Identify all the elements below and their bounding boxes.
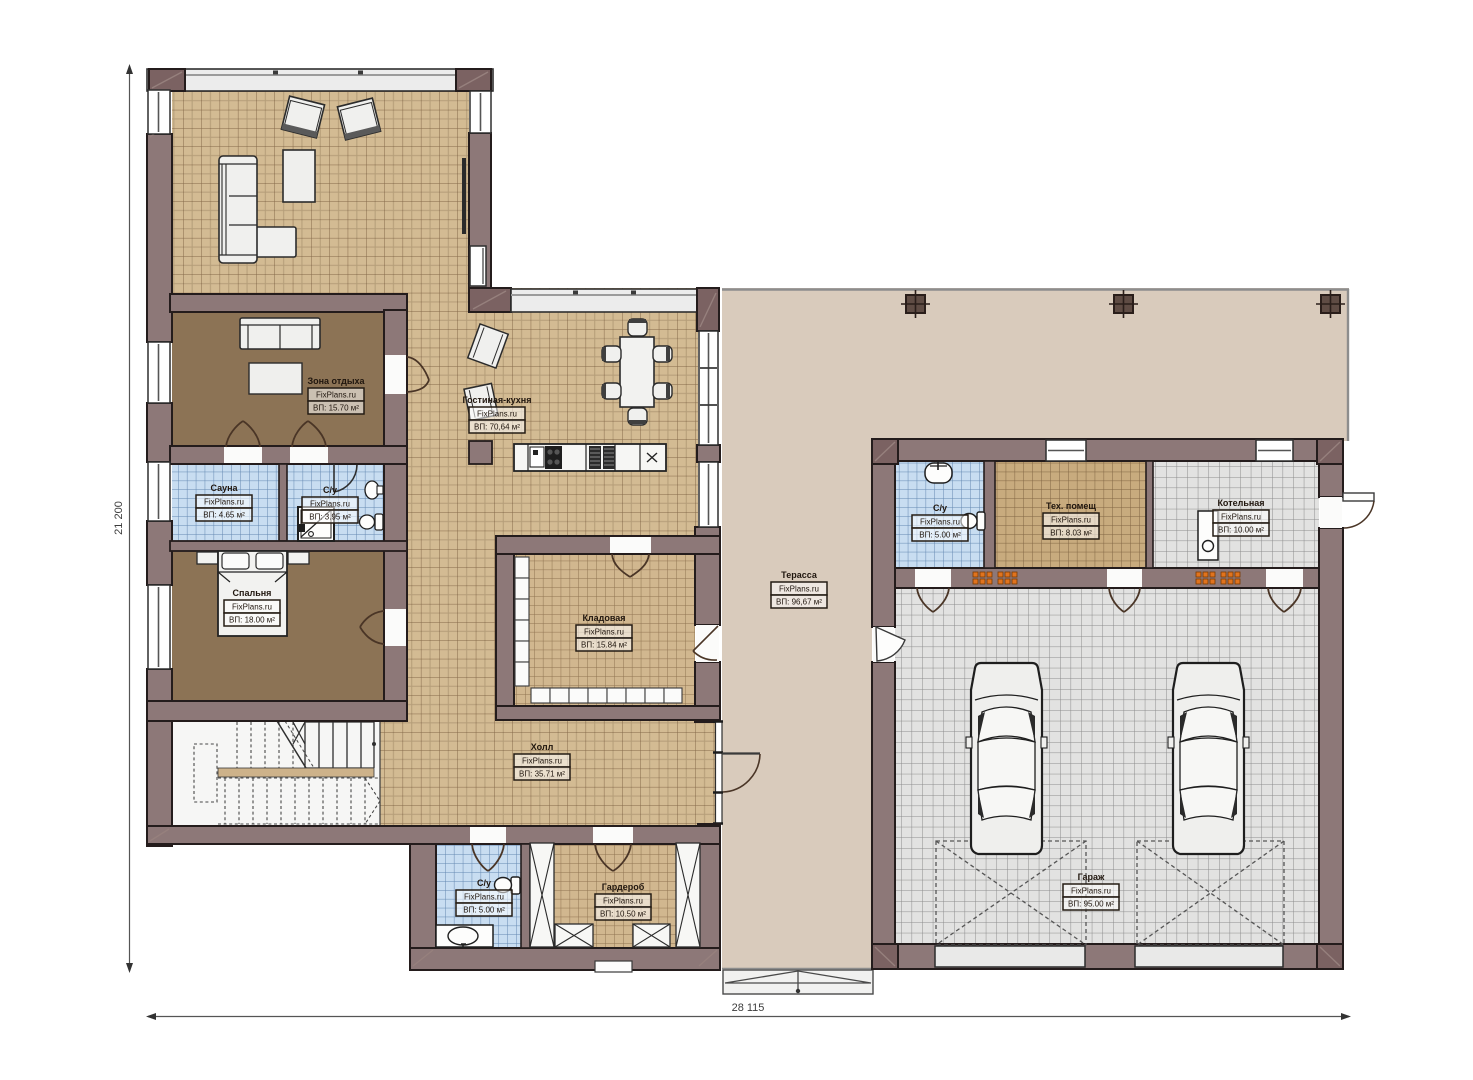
svg-text:Котельная: Котельная <box>1217 498 1264 508</box>
svg-text:Тех. помещ: Тех. помещ <box>1046 501 1096 511</box>
svg-text:FixPlans.ru: FixPlans.ru <box>1221 513 1261 522</box>
svg-text:Холл: Холл <box>531 742 554 752</box>
svg-text:FixPlans.ru: FixPlans.ru <box>1051 516 1091 525</box>
svg-text:FixPlans.ru: FixPlans.ru <box>204 498 244 507</box>
svg-text:FixPlans.ru: FixPlans.ru <box>310 500 350 509</box>
svg-text:21 200: 21 200 <box>113 501 125 535</box>
svg-text:FixPlans.ru: FixPlans.ru <box>477 410 517 419</box>
svg-text:ВП: 8.03 м²: ВП: 8.03 м² <box>1050 529 1092 538</box>
svg-text:Кладовая: Кладовая <box>582 613 625 623</box>
svg-text:FixPlans.ru: FixPlans.ru <box>920 518 960 527</box>
svg-text:ВП: 70,64 м²: ВП: 70,64 м² <box>474 423 520 432</box>
svg-text:Гостиная-кухня: Гостиная-кухня <box>463 395 532 405</box>
svg-text:ВП: 5.00 м²: ВП: 5.00 м² <box>919 531 961 540</box>
svg-text:FixPlans.ru: FixPlans.ru <box>779 585 819 594</box>
svg-text:Сауна: Сауна <box>210 483 238 493</box>
svg-text:С/у: С/у <box>933 503 947 513</box>
svg-text:Гардероб: Гардероб <box>602 882 645 892</box>
svg-text:Спальня: Спальня <box>233 588 272 598</box>
svg-text:С/у: С/у <box>477 878 491 888</box>
svg-text:Зона отдыха: Зона отдыха <box>307 376 365 386</box>
svg-text:С/у: С/у <box>323 485 337 495</box>
svg-text:ВП: 15.70 м²: ВП: 15.70 м² <box>313 404 359 413</box>
svg-text:FixPlans.ru: FixPlans.ru <box>584 628 624 637</box>
svg-text:ВП: 18.00 м²: ВП: 18.00 м² <box>229 616 275 625</box>
svg-text:ВП: 10.50 м²: ВП: 10.50 м² <box>600 910 646 919</box>
svg-text:FixPlans.ru: FixPlans.ru <box>522 757 562 766</box>
svg-text:FixPlans.ru: FixPlans.ru <box>316 391 356 400</box>
svg-text:ВП: 10.00 м²: ВП: 10.00 м² <box>1218 526 1264 535</box>
svg-text:28 115: 28 115 <box>732 1002 765 1014</box>
svg-text:Терасса: Терасса <box>781 570 818 580</box>
svg-text:ВП: 15.84 м²: ВП: 15.84 м² <box>581 641 627 650</box>
svg-text:FixPlans.ru: FixPlans.ru <box>603 897 643 906</box>
svg-text:ВП: 96,67 м²: ВП: 96,67 м² <box>776 598 822 607</box>
svg-text:FixPlans.ru: FixPlans.ru <box>1071 887 1111 896</box>
svg-text:ВП: 5.00 м²: ВП: 5.00 м² <box>463 906 505 915</box>
svg-text:ВП: 95.00 м²: ВП: 95.00 м² <box>1068 900 1114 909</box>
svg-text:Гараж: Гараж <box>1078 872 1105 882</box>
svg-text:FixPlans.ru: FixPlans.ru <box>232 603 272 612</box>
svg-text:ВП: 3.95 м²: ВП: 3.95 м² <box>309 513 351 522</box>
svg-text:ВП: 35.71 м²: ВП: 35.71 м² <box>519 770 565 779</box>
svg-text:FixPlans.ru: FixPlans.ru <box>464 893 504 902</box>
svg-text:ВП: 4.65 м²: ВП: 4.65 м² <box>203 511 245 520</box>
